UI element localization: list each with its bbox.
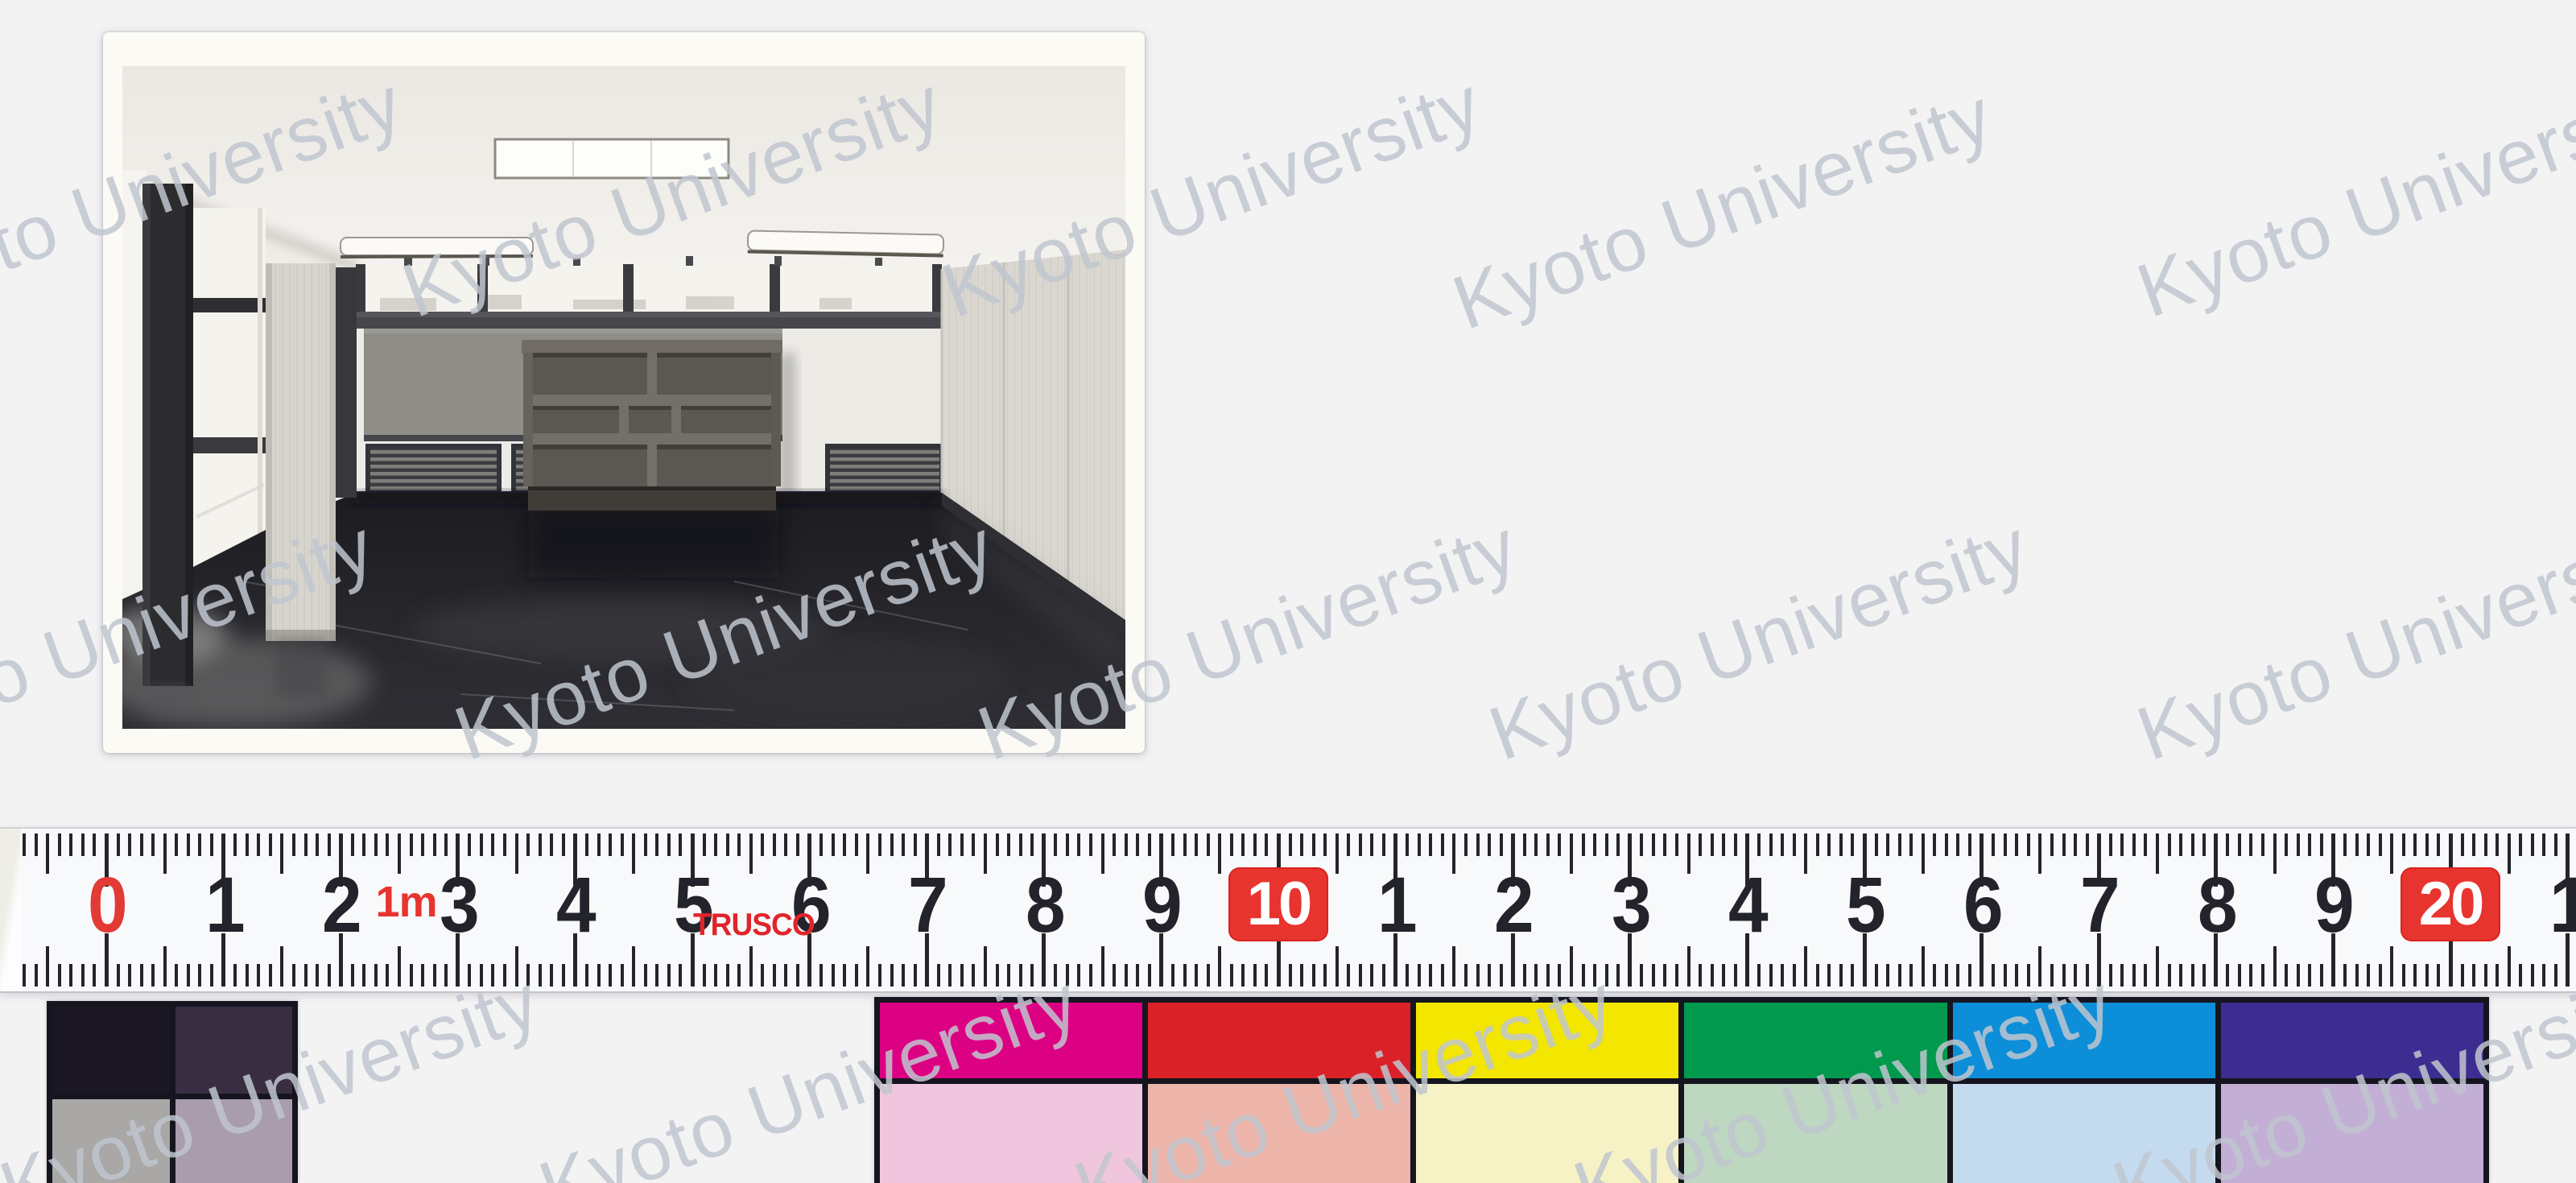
ruler-tick xyxy=(960,833,964,856)
ruler-tick xyxy=(1476,833,1480,856)
trusco-logo: TRUSCO xyxy=(693,909,815,941)
ruler-tick xyxy=(597,964,601,987)
ruler-tick xyxy=(667,833,671,856)
ruler-tick xyxy=(410,833,413,856)
ruler-tick xyxy=(2086,833,2089,856)
ruler-tick xyxy=(2472,964,2475,987)
ruler-tick xyxy=(2004,833,2007,856)
ruler-tick xyxy=(2542,964,2545,987)
ruler-tick xyxy=(1992,833,1995,856)
ruler-tick xyxy=(1007,833,1010,856)
ruler-tick xyxy=(1089,833,1092,856)
ruler-tick xyxy=(35,964,38,987)
ruler-tick xyxy=(2226,964,2229,987)
ruler-tick xyxy=(1019,964,1022,987)
ruler-tick xyxy=(386,964,389,987)
ruler-tick xyxy=(280,946,283,987)
ruler-number: 1 xyxy=(179,866,267,944)
ruler-tick xyxy=(539,964,542,987)
ruler-tick xyxy=(1066,833,1069,856)
ruler-tick xyxy=(1605,964,1608,987)
ruler-tick xyxy=(1195,964,1198,987)
ruler-tick xyxy=(1230,964,1233,987)
ruler-tick xyxy=(1500,964,1503,987)
ruler-tick xyxy=(1898,964,1901,987)
ruler-tick xyxy=(1593,833,1596,856)
ruler-tick xyxy=(1793,964,1796,987)
ruler-tick xyxy=(1183,833,1187,856)
ruler-tick xyxy=(655,833,658,856)
color-patch-dark-purple xyxy=(175,1007,293,1094)
ruler-tick xyxy=(2074,833,2077,856)
ruler-tick xyxy=(1148,833,1151,856)
ruler-tick xyxy=(433,964,436,987)
ruler-tick xyxy=(1136,964,1139,987)
ruler-tick xyxy=(1148,964,1151,987)
ruler-tick xyxy=(621,964,624,987)
ruler-tick xyxy=(1909,964,1913,987)
ruler-number: 7 xyxy=(2054,866,2143,944)
ruler-tick xyxy=(749,946,753,987)
ruler-tick xyxy=(2484,833,2487,856)
ruler-tick xyxy=(1956,964,1959,987)
ruler-tick xyxy=(2320,833,2323,856)
ruler-number: 9 xyxy=(1117,866,1205,944)
ruler-tick xyxy=(2320,964,2323,987)
ruler-tick xyxy=(1546,964,1550,987)
ruler-tick xyxy=(1218,946,1221,987)
ruler-tick xyxy=(644,964,647,987)
ruler-tick xyxy=(832,833,835,856)
ruler-tick xyxy=(362,833,365,856)
color-patch-gray xyxy=(52,1099,170,1183)
ruler-tick xyxy=(550,964,553,987)
ruler-tick xyxy=(374,964,378,987)
ruler-tick xyxy=(23,964,26,987)
ruler-tick xyxy=(351,964,354,987)
ruler-tick xyxy=(878,833,881,856)
ruler-tick xyxy=(2402,964,2405,987)
ruler-tick xyxy=(491,964,494,987)
ruler-tick xyxy=(46,833,49,874)
ruler-tick xyxy=(480,964,483,987)
ruler-tick xyxy=(2238,833,2241,856)
photo-image-area xyxy=(122,66,1125,729)
ruler-tick xyxy=(726,964,729,987)
ruler-tick xyxy=(597,833,601,856)
shelf-reflection xyxy=(529,505,778,577)
ruler-tick xyxy=(1956,833,1959,856)
ruler-tick xyxy=(46,946,49,987)
ruler-tick xyxy=(128,964,131,987)
ruler-tick xyxy=(1125,833,1128,856)
ruler-tick xyxy=(948,964,952,987)
ruler-tick xyxy=(832,964,835,987)
ruler-tick xyxy=(2156,833,2159,874)
ruler-tick xyxy=(843,833,846,856)
ruler-tick xyxy=(2484,964,2487,987)
ruler-tick xyxy=(210,964,213,987)
ruler-tick xyxy=(784,833,787,856)
ruler-tick xyxy=(128,833,131,856)
ruler-tick xyxy=(2191,964,2194,987)
ruler-tick xyxy=(503,833,506,856)
ruler-tick xyxy=(2015,964,2018,987)
ruler-tick xyxy=(2261,964,2264,987)
ruler-tick xyxy=(972,964,975,987)
ruler-tick xyxy=(1827,833,1831,856)
ruler-tick xyxy=(2355,964,2359,987)
ruler-tick xyxy=(2437,964,2440,987)
ruler-tick xyxy=(937,833,940,856)
ruler-tick xyxy=(1523,833,1526,856)
ruler-number: 4 xyxy=(530,866,619,944)
ruler-tick xyxy=(1312,964,1315,987)
ruler-tick xyxy=(2425,964,2429,987)
ruler-tick xyxy=(2495,964,2499,987)
ruler-tick xyxy=(703,833,706,856)
ruler-tick xyxy=(187,833,190,856)
ruler-tick xyxy=(2285,964,2288,987)
ruler-tick xyxy=(1253,964,1257,987)
ruler-tick xyxy=(2508,833,2511,874)
window-transom xyxy=(193,298,266,312)
ruler-tick xyxy=(562,964,565,987)
ruler-tick xyxy=(93,964,96,987)
ruler-tick xyxy=(2191,833,2194,856)
color-patch-pale-green xyxy=(1684,1084,1946,1183)
ruler-tick xyxy=(35,833,38,856)
color-patch-magenta xyxy=(880,1003,1142,1078)
ruler-tick xyxy=(1347,964,1350,987)
ruler-tick xyxy=(233,833,237,856)
ruler-tick xyxy=(210,833,213,856)
ruler-tick xyxy=(1207,833,1210,856)
ruler-tick xyxy=(1441,964,1444,987)
ruler-tick xyxy=(1113,964,1116,987)
ruler-tick xyxy=(2519,964,2522,987)
ruler-tick xyxy=(1558,964,1561,987)
ruler-tick xyxy=(1652,833,1655,856)
ruler-tick xyxy=(1323,964,1327,987)
ruler-tick xyxy=(2308,833,2311,856)
ruler-tick xyxy=(737,964,741,987)
ruler-number-highlight: 20 xyxy=(2401,867,2500,941)
ruler-tick xyxy=(1711,833,1714,856)
ruler-tick xyxy=(1734,833,1737,856)
ruler-tick xyxy=(2120,833,2124,856)
ruler-tick xyxy=(1335,946,1339,987)
concrete-column xyxy=(266,263,336,697)
ruler-tick xyxy=(163,946,167,987)
ruler-tick xyxy=(515,833,518,874)
ruler-tick xyxy=(761,964,764,987)
ruler-tick xyxy=(1359,833,1362,856)
ruler-tick xyxy=(866,946,869,987)
ruler-tick xyxy=(1699,833,1702,856)
ruler-tick xyxy=(433,833,436,856)
ruler-tick xyxy=(1136,833,1139,856)
ruler-tick xyxy=(2202,833,2206,856)
ruler-tick xyxy=(749,833,753,874)
ruler-tick xyxy=(421,833,424,856)
ruler-tick xyxy=(1066,964,1069,987)
ruler-tick xyxy=(1652,964,1655,987)
ruler-tick xyxy=(1464,964,1468,987)
ruler-tick xyxy=(2554,833,2557,856)
ruler-tick xyxy=(468,833,471,856)
ruler-number: 6 xyxy=(1937,866,2025,944)
ruler-tick xyxy=(2413,964,2417,987)
ruler-tick xyxy=(233,964,237,987)
ruler-tick xyxy=(1030,964,1034,987)
ruler-tick xyxy=(1570,946,1573,987)
ruler-tick xyxy=(2379,964,2382,987)
ruler-tick xyxy=(304,964,308,987)
ruler-tick xyxy=(2132,964,2136,987)
ruler-tick xyxy=(1171,833,1174,856)
bookshelf xyxy=(522,340,795,511)
color-patch-black xyxy=(52,1007,170,1094)
ruler-tick xyxy=(843,964,846,987)
ruler-tick xyxy=(2461,964,2464,987)
ruler-tick xyxy=(58,833,61,856)
ruler-tick xyxy=(2156,946,2159,987)
ruler-number: 0 xyxy=(62,866,151,944)
ruler-tick xyxy=(1663,964,1666,987)
clerestory-windows xyxy=(356,256,942,329)
ruler-tick xyxy=(2285,833,2288,856)
ruler-tick xyxy=(480,833,483,856)
ruler-tick xyxy=(386,833,389,856)
ruler-tick xyxy=(1781,833,1784,856)
ruler-tick xyxy=(1851,964,1854,987)
ruler-tick xyxy=(1300,964,1303,987)
ruler-tick xyxy=(609,833,612,856)
ruler-tick xyxy=(1230,833,1233,856)
ruler-tick xyxy=(937,964,940,987)
grayscale-chart xyxy=(47,1001,298,1183)
ruler-tick xyxy=(2495,833,2499,856)
ruler-tick xyxy=(2437,833,2440,856)
ruler-tick xyxy=(1441,833,1444,856)
ruler-number-highlight: 10 xyxy=(1228,867,1328,941)
ruler-tick xyxy=(2226,833,2229,856)
ruler-tick xyxy=(1875,964,1878,987)
ruler-tick xyxy=(2132,833,2136,856)
ruler-tick xyxy=(1687,833,1690,874)
ruler-tick xyxy=(151,964,155,987)
ruler-tick xyxy=(2379,833,2382,856)
ruler-tick xyxy=(468,964,471,987)
ruler-tick xyxy=(2425,833,2429,856)
ruler-tick xyxy=(2050,833,2054,856)
ruler-tick xyxy=(2249,964,2252,987)
ruler-tick xyxy=(1452,946,1455,987)
ruler-tick xyxy=(948,833,952,856)
ruler-tick xyxy=(292,964,295,987)
ruler-tick xyxy=(351,833,354,856)
ruler-tick xyxy=(1992,964,1995,987)
ruler-tick xyxy=(1640,964,1643,987)
ruler-tick xyxy=(1816,833,1819,856)
ruler-tick xyxy=(1054,833,1057,856)
ruler-tick xyxy=(2062,964,2066,987)
ruler-tick xyxy=(2273,833,2277,874)
ruler-tick xyxy=(2168,833,2171,856)
ruler-tick xyxy=(1429,964,1432,987)
ruler-tick xyxy=(2144,833,2147,856)
color-patch-yellow xyxy=(1416,1003,1678,1078)
ruler-tick xyxy=(2038,946,2041,987)
ruler-tick xyxy=(1699,964,1702,987)
ruler-tick xyxy=(737,833,741,856)
ruler-tick xyxy=(996,833,999,856)
ruler-tick xyxy=(855,964,858,987)
ruler-tick xyxy=(1769,833,1773,856)
ruler-tick xyxy=(1429,833,1432,856)
ruler-tick xyxy=(1125,964,1128,987)
window-frame-column xyxy=(142,184,193,718)
ruler-tick xyxy=(1382,833,1385,856)
ruler-tick xyxy=(316,833,319,856)
ruler-tick xyxy=(1582,833,1585,856)
ruler-tick xyxy=(328,964,331,987)
ruler-tick xyxy=(1945,964,1948,987)
ruler-tick xyxy=(1054,964,1057,987)
ruler-tick xyxy=(2074,964,2077,987)
ruler-tick xyxy=(2109,964,2112,987)
ruler-tick xyxy=(374,833,378,856)
ruler-tick xyxy=(1523,964,1526,987)
ruler-number: 8 xyxy=(1000,866,1088,944)
ruler-tick xyxy=(1241,833,1245,856)
ruler-tick xyxy=(914,964,917,987)
meter-mark: 1m xyxy=(376,880,437,924)
ruler-tick xyxy=(902,833,905,856)
ruler-tick xyxy=(1077,833,1080,856)
ruler-tick xyxy=(2202,964,2206,987)
ruler-tick xyxy=(2144,964,2147,987)
ruler-tick xyxy=(1933,964,1936,987)
ruler-tick xyxy=(972,833,975,856)
ceiling-light-tube xyxy=(748,230,943,255)
ruler-tick xyxy=(1933,833,1936,856)
ruler-tick xyxy=(585,964,588,987)
color-patch-lavender xyxy=(2221,1084,2483,1183)
ruler-tick xyxy=(726,833,729,856)
ruler-tick xyxy=(1312,833,1315,856)
ruler-tick xyxy=(526,964,530,987)
ruler-tick xyxy=(1757,833,1761,856)
ruler-tick xyxy=(632,946,635,987)
ruler-tick xyxy=(1722,833,1725,856)
ruler-tick xyxy=(2015,833,2018,856)
ruler-tick xyxy=(198,833,201,856)
photo-print xyxy=(103,32,1145,753)
ruler-tick xyxy=(163,833,167,874)
ruler-tick xyxy=(2297,833,2300,856)
ruler-tick xyxy=(2297,964,2300,987)
ceiling-light-tube xyxy=(341,238,533,257)
ceiling-light-panel xyxy=(495,139,729,178)
ruler-tick xyxy=(2367,964,2370,987)
radiator-grille xyxy=(828,446,942,493)
ruler-tick xyxy=(1418,833,1421,856)
ruler-tick xyxy=(1488,833,1491,856)
ruler-tick xyxy=(714,833,717,856)
ruler-tick xyxy=(304,833,308,856)
ruler-tick xyxy=(1171,964,1174,987)
ruler-tick xyxy=(1945,833,1948,856)
ruler-tick xyxy=(2519,833,2522,856)
ruler-tick xyxy=(58,964,61,987)
ruler-tick xyxy=(151,833,155,856)
ruler-tick xyxy=(784,964,787,987)
ruler-tick xyxy=(1839,833,1843,856)
ruler-tick xyxy=(796,833,799,856)
ruler-tick xyxy=(703,964,706,987)
ruler-tick xyxy=(269,964,272,987)
ruler-tick xyxy=(246,964,249,987)
ruler-tick xyxy=(2531,964,2534,987)
color-patch-red xyxy=(1148,1003,1410,1078)
watermark-text: Kyoto University xyxy=(2094,41,2576,354)
ruler-tick xyxy=(996,964,999,987)
radiator-grille xyxy=(368,446,499,493)
watermark-text: Kyoto University xyxy=(1410,53,2035,366)
ruler-tick xyxy=(902,964,905,987)
ruler-tick xyxy=(1476,964,1480,987)
wall-beam xyxy=(356,317,942,329)
ruler-tick xyxy=(632,833,635,874)
ruler-tick xyxy=(2179,964,2182,987)
ruler-tick xyxy=(2472,833,2475,856)
color-patch-violet xyxy=(2221,1003,2483,1078)
ruler-tick xyxy=(1195,833,1198,856)
ruler-tick xyxy=(1968,833,1971,856)
ruler-tick xyxy=(198,964,201,987)
ruler-tick xyxy=(1370,964,1373,987)
ruler-tick xyxy=(1089,964,1092,987)
ruler-tick xyxy=(1464,833,1468,856)
ruler-tick xyxy=(819,833,823,856)
ruler-tick xyxy=(2542,833,2545,856)
ruler-tick xyxy=(1218,833,1221,874)
ruler-tick xyxy=(2261,833,2264,856)
ruler-number: 1 xyxy=(1351,866,1439,944)
ruler-tick xyxy=(2367,833,2370,856)
ruler-tick xyxy=(1265,964,1268,987)
ruler-tick xyxy=(1593,964,1596,987)
ruler-tick xyxy=(1488,964,1491,987)
ruler-tick xyxy=(292,833,295,856)
ruler-tick xyxy=(81,833,85,856)
ruler-tick xyxy=(550,833,553,856)
ruler-tick xyxy=(503,964,506,987)
ruler-tick xyxy=(1077,964,1080,987)
ruler-tick xyxy=(890,964,894,987)
ruler-number: 2 xyxy=(296,866,385,944)
ruler-tick xyxy=(1418,964,1421,987)
color-patch-pink xyxy=(880,1084,1142,1183)
ruler-tick xyxy=(914,833,917,856)
ruler-tick xyxy=(2461,833,2464,856)
ruler-tick xyxy=(878,964,881,987)
ruler-tick xyxy=(1019,833,1022,856)
ruler-tick xyxy=(117,964,120,987)
ruler-tick xyxy=(1909,833,1913,856)
